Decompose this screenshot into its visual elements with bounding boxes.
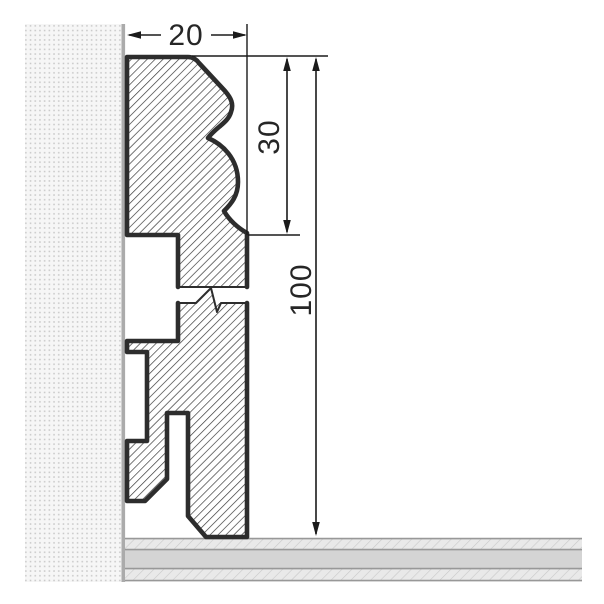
wall-stipple-area	[25, 24, 122, 582]
arrowhead-up-icon	[283, 57, 291, 71]
dimension-width-label: 20	[168, 19, 203, 52]
wall-surface-line	[122, 24, 126, 582]
upper-section-hatch-fill	[127, 57, 247, 287]
arrowhead-left-icon	[127, 31, 141, 39]
skirting-profile-lower-section	[127, 288, 247, 537]
arrowhead-right-icon	[233, 31, 247, 39]
dimension-overall-height-label: 100	[285, 263, 318, 316]
wall-section	[25, 24, 125, 582]
floor-core-layer	[125, 550, 582, 569]
technical-drawing-page: 20 30 100	[0, 0, 604, 604]
dimension-upper-height-label: 30	[253, 119, 286, 154]
skirting-profile-upper-section	[127, 57, 247, 287]
floor-bottom-screed-layer	[125, 569, 582, 581]
dimension-overall-height: 100	[285, 57, 320, 536]
floor-top-screed-layer	[125, 539, 582, 550]
arrowhead-up-icon	[312, 57, 320, 71]
floor-section	[125, 539, 582, 581]
skirting-profile-drawing: 20 30 100	[0, 0, 604, 604]
arrowhead-down-icon	[312, 522, 320, 536]
arrowhead-down-icon	[283, 220, 291, 234]
